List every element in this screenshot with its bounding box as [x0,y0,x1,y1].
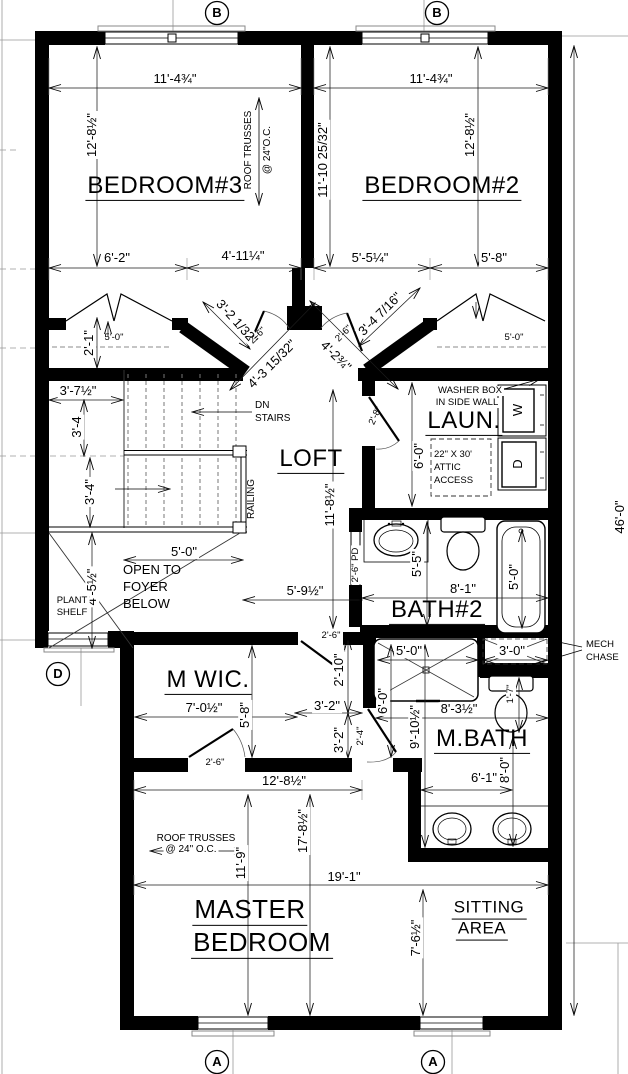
note-attic-2: ATTIC [434,463,461,473]
dim-shower-depth: 6'-0" [376,686,390,716]
room-label-bedroom2: BEDROOM#2 [362,173,521,201]
note-attic-3: ACCESS [434,476,473,486]
dim-master-11-9: 11'-9" [234,845,248,881]
note-mech-2: CHASE [586,653,619,663]
note-mech-1: MECH [586,640,614,650]
dim-pocket-door: 2'-6" PD [351,546,361,585]
dim-overall-height: 46'-0" [613,500,627,533]
dim-b2-closet-right: 5'-8" [479,251,509,265]
dim-toilet-1-7: 1'-7" [506,683,516,706]
note-open-1: OPEN TO [123,563,181,577]
dim-vest-3-2h: 3'-2" [332,725,346,755]
dim-master-17-8: 17'-8½" [296,807,310,855]
note-washer-box-2: IN SIDE WALL [434,398,500,408]
note-open-3: BELOW [123,597,170,611]
grid-bubble-a-right: A [428,1055,437,1069]
dim-tub-length: 5'-0" [507,562,521,592]
note-plant-1: PLANT [55,596,90,606]
railing-lines [49,451,247,533]
dim-vest-3-2w: 3'-2" [312,699,342,713]
dim-hall-3-4a: 3'-4 [70,414,84,439]
dim-door-hall: 2'-6" [320,631,343,641]
dim-hall-3-4b: 3'-4" [83,477,97,507]
room-label-master-1: MASTER [192,896,307,926]
room-label-bedroom3: BEDROOM#3 [85,173,244,201]
angled-walls [183,324,431,372]
floor-plan-linework [0,0,628,1074]
room-label-mwic: M WIC. [165,667,252,695]
note-roof-trusses-m-2: @ 24" O.C. [164,845,219,856]
dim-loft-depth: 11'-8½" [323,482,337,529]
room-label-sitting-2: AREA [456,920,508,941]
dim-bath2-depth: 5'-5" [410,549,424,579]
washer-icon-label: W [511,404,525,416]
dim-b3-closet-right: 4'-11¼" [220,249,267,263]
dim-bedroom3-width: 11'-4¾" [152,72,199,86]
note-plant-2: SHELF [55,608,90,618]
room-label-master-2: BEDROOM [191,929,333,959]
dim-mbath-depth: 9'-10½" [408,703,422,751]
grid-bubble-b-right: B [432,6,441,20]
note-open-2: FOYER [123,580,168,594]
dim-door-wic: 2'-6" [204,758,227,768]
dim-wic-depth: 5'-8" [238,700,252,730]
mbath-vanity-icon [420,806,548,848]
note-roof-trusses-m-1: ROOF TRUSSES [155,834,238,845]
dim-closet3-width: 5'-0" [105,333,124,343]
dim-bedroom2-width: 11'-4¾" [408,72,455,86]
note-railing: RAILING [247,479,258,519]
dim-sitting-7-6: 7'-6½" [409,918,423,959]
dim-mbath-width: 8'-3½" [439,702,480,716]
floor-plan-sheet: B B A A D BEDROOM#3 BEDROOM#2 LOFT LAUN.… [0,0,628,1074]
washer-dryer-icons [498,385,546,490]
grid-bubble-b-left: B [212,6,221,20]
dim-bedroom3-height: 12'-8½" [85,111,99,159]
dim-master-12-8: 12'-8½" [260,774,308,788]
note-roof-trusses-b3-2: @ 24"O.C. [263,124,274,176]
dim-loft-width: 5'-9½" [285,584,326,598]
bath2-toilet-icon [441,517,485,570]
note-dn-1: DN [255,401,269,412]
dim-closet2-width: 5'-0" [505,333,524,343]
dim-mbath-8-0: 8'-0" [498,755,512,785]
room-label-bath2: BATH#2 [389,597,485,625]
dim-master-19-1: 19'-1" [325,870,362,884]
dim-vanity-6-1: 6'-1" [469,771,499,785]
dryer-icon-label: D [511,459,525,468]
dim-door-vest: 2'-4" [356,725,366,748]
dim-chase-width: 3'-0" [497,644,527,658]
dim-hall-3-7: 3'-7½" [58,384,99,398]
room-label-sitting-1: SITTING [452,899,527,920]
note-attic-1: 22" X 30' [434,450,472,460]
dim-b3-closet-left: 6'-2" [102,251,132,265]
dim-closet-depth: 2'-1" [82,328,96,358]
room-label-loft: LOFT [277,446,344,474]
dim-shower-width: 5'-0" [394,644,424,658]
grid-bubble-a-left: A [212,1055,221,1069]
room-label-mbath: M.BATH [434,726,530,754]
grid-bubble-d: D [53,667,62,681]
note-roof-trusses-b3-1: ROOF TRUSSES [244,109,255,192]
room-label-laundry: LAUN. [425,408,502,436]
dim-laundry-depth: 6'-0" [412,441,426,471]
note-washer-box-1: WASHER BOX [436,386,504,396]
dim-foyer-width: 5'-0" [169,545,199,559]
dim-bedroom2-height: 12'-8½" [463,111,477,159]
dim-wic-width: 7'-0½" [184,701,225,715]
note-dn-2: STAIRS [255,414,290,425]
dim-vest-2-10: 2'-10" [332,651,346,688]
dim-bath2-width: 8'-1" [448,582,478,596]
dim-b2-closet-left: 5'-5¼" [350,251,391,265]
dim-bedroom2-depth: 11'-10 25/32" [316,120,330,200]
